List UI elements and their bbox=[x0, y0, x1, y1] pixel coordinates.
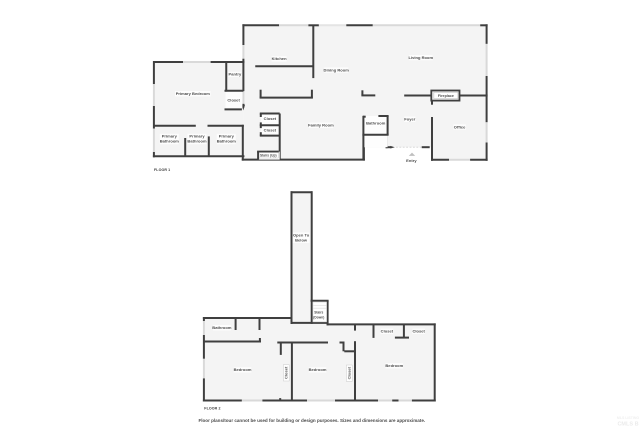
svg-text:Bedroom: Bedroom bbox=[234, 367, 252, 372]
svg-text:Floor plans/tour cannot be use: Floor plans/tour cannot be used for buil… bbox=[198, 418, 425, 423]
svg-text:Closet: Closet bbox=[412, 329, 425, 334]
svg-text:Primary Bedroom: Primary Bedroom bbox=[176, 91, 211, 96]
svg-text:Closet: Closet bbox=[227, 97, 240, 102]
svg-text:Dining Room: Dining Room bbox=[324, 67, 350, 72]
svg-text:Below: Below bbox=[295, 238, 308, 243]
svg-text:Foyer: Foyer bbox=[404, 117, 415, 122]
svg-text:Bedroom: Bedroom bbox=[309, 367, 327, 372]
svg-text:Stairs (Up): Stairs (Up) bbox=[260, 154, 277, 158]
svg-text:Fireplace: Fireplace bbox=[438, 94, 454, 98]
svg-text:MLS LISTING: MLS LISTING bbox=[617, 416, 639, 420]
svg-text:Bedroom: Bedroom bbox=[385, 363, 403, 368]
svg-text:Closet: Closet bbox=[284, 366, 289, 379]
svg-text:(Down): (Down) bbox=[313, 315, 324, 319]
svg-text:Living Room: Living Room bbox=[408, 55, 433, 60]
svg-text:Closet: Closet bbox=[381, 329, 394, 334]
svg-text:Bathroom: Bathroom bbox=[160, 138, 180, 143]
svg-text:Closet: Closet bbox=[264, 116, 277, 121]
svg-text:Kitchen: Kitchen bbox=[272, 56, 287, 61]
svg-text:Family Room: Family Room bbox=[308, 123, 334, 128]
svg-text:Bathroom: Bathroom bbox=[212, 325, 232, 330]
svg-text:Entry: Entry bbox=[406, 158, 417, 163]
svg-text:Office: Office bbox=[454, 124, 466, 129]
svg-text:Stairs: Stairs bbox=[314, 311, 323, 315]
svg-text:Closet: Closet bbox=[264, 128, 277, 133]
svg-text:Bathroom: Bathroom bbox=[187, 138, 207, 143]
svg-text:FLOOR 2: FLOOR 2 bbox=[204, 406, 220, 410]
svg-text:Pantry: Pantry bbox=[229, 72, 242, 77]
svg-text:Bathroom: Bathroom bbox=[366, 120, 386, 125]
svg-text:FLOOR 1: FLOOR 1 bbox=[154, 168, 170, 172]
svg-text:CMLS B: CMLS B bbox=[617, 422, 638, 427]
svg-text:Bathroom: Bathroom bbox=[217, 138, 237, 143]
svg-text:Closet: Closet bbox=[347, 366, 352, 379]
